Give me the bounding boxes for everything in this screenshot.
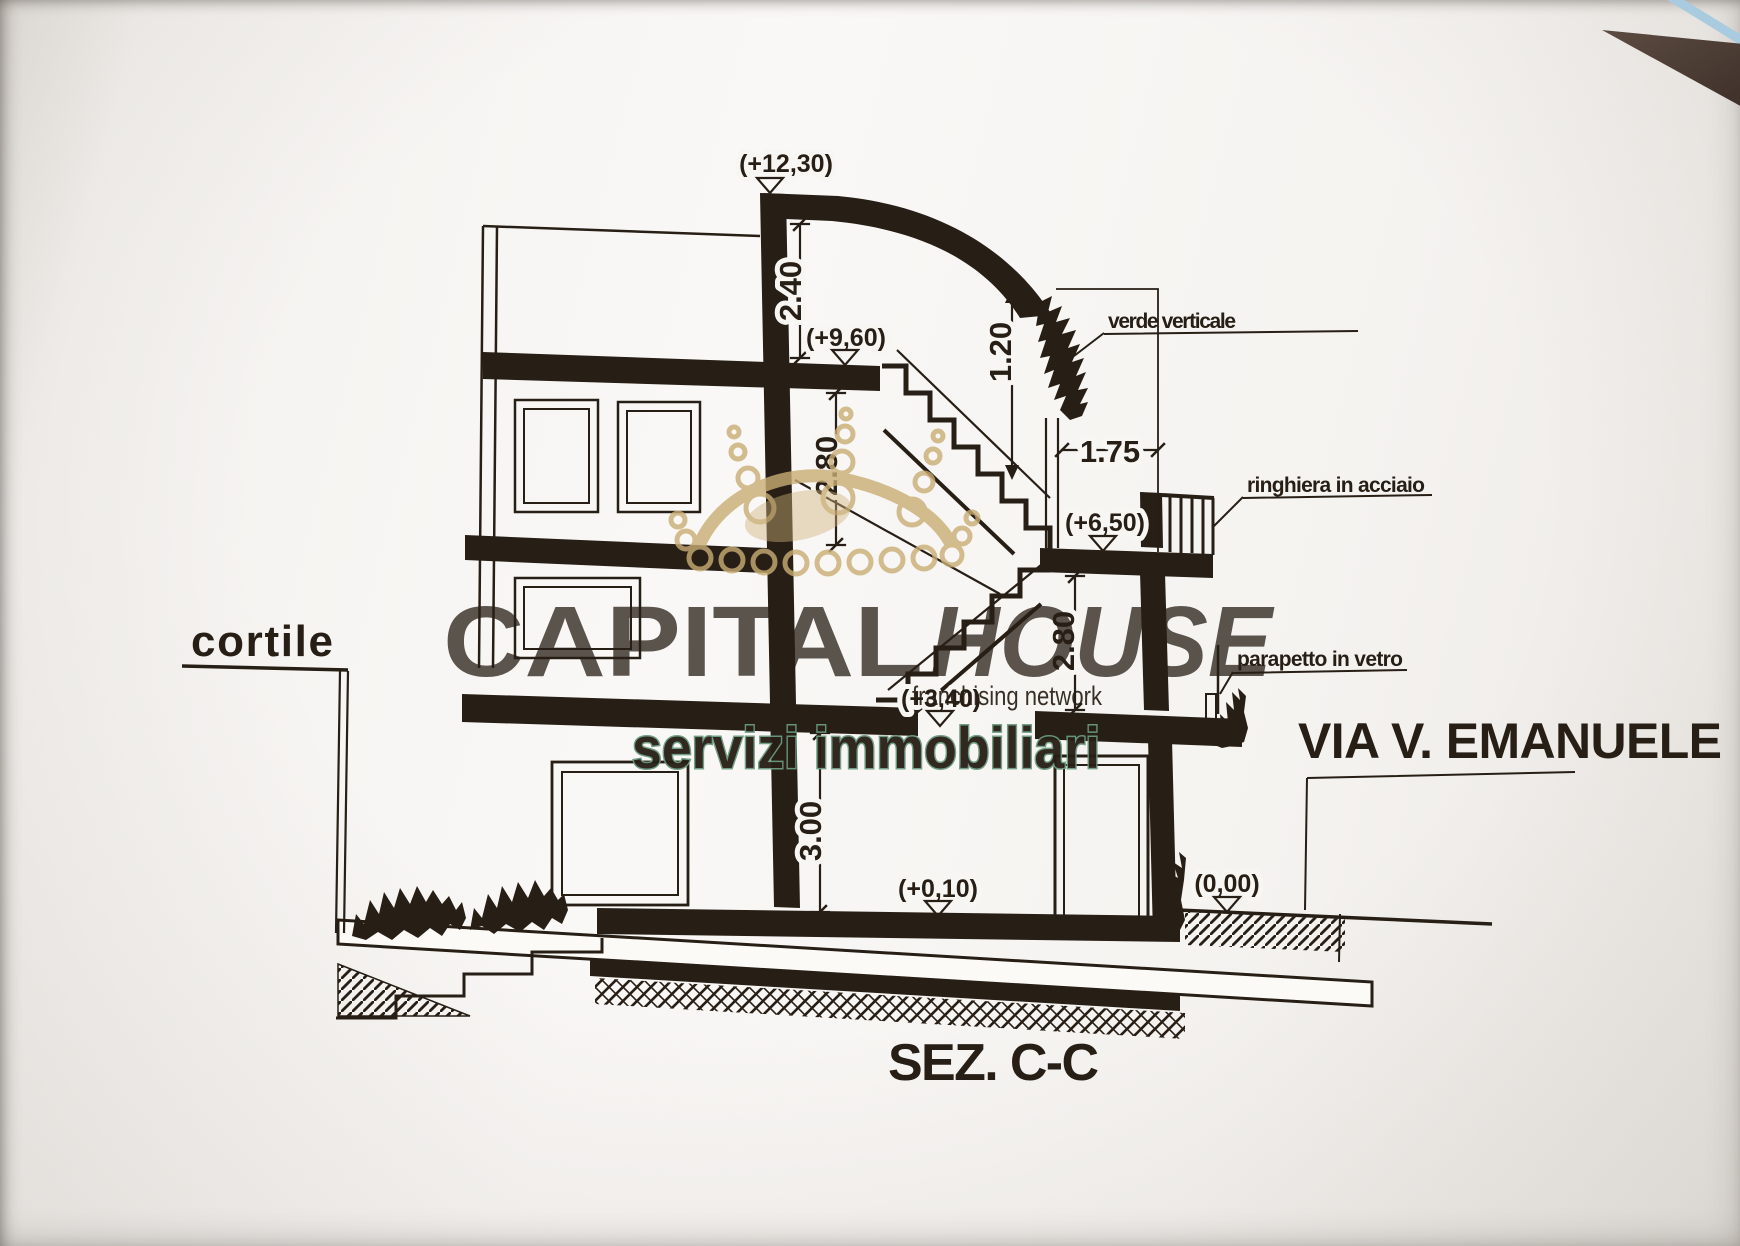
elevation-label: (0,00) [1194, 870, 1259, 898]
rear-roof-line [483, 226, 760, 236]
dimension-label: 1.75 [1080, 434, 1140, 469]
slab-960 [483, 352, 880, 391]
elevation-label: (+6,50) [1065, 509, 1145, 537]
marker-0_00: (0,00) [1194, 870, 1259, 912]
dimension-label: 1.20 [983, 322, 1018, 382]
callout-ringhiera: ringhiera in acciaio [1212, 474, 1432, 528]
marker-6_50: (+6,50) [1065, 509, 1145, 551]
callout-label: verde verticale [1108, 310, 1236, 333]
terrain-hatch [338, 964, 470, 1016]
ground-slab [597, 908, 1180, 942]
ground-door-right [1055, 756, 1148, 928]
watermark-subtitle: servizi immobiliari [632, 716, 1100, 781]
dimension-label: 2.40 [773, 261, 808, 321]
upper-window-right [618, 402, 700, 512]
slab-650-right [1040, 548, 1213, 578]
upper-window-left [515, 400, 598, 512]
elevation-triangle-icon [1214, 897, 1240, 912]
street-hatch [1185, 912, 1345, 952]
marker-9_60: (+9,60) [806, 324, 886, 365]
balcony-railing [1162, 495, 1214, 555]
elevation-label: (+9,60) [806, 324, 886, 352]
courtyard-label: cortile [191, 617, 333, 666]
elevation-triangle-icon [832, 350, 858, 365]
street [1178, 772, 1575, 962]
scanned-plan-photo: 2.40 1.20 2.80 1.75 2.80 [0, 0, 1740, 1246]
corner-blue-stripe [1666, 0, 1740, 42]
dimension-label: 3.00 [793, 801, 828, 861]
callout-label: ringhiera in acciaio [1247, 474, 1425, 497]
photo-corner [1602, 0, 1740, 108]
courtyard-underline [182, 666, 348, 670]
dim-1_75: 1.75 [1056, 434, 1164, 469]
elevation-label: (+12,30) [739, 150, 833, 178]
elevation-triangle-icon [757, 178, 783, 193]
ground-window [552, 762, 688, 905]
section-title: SEZ. C-C [888, 1034, 1102, 1092]
watermark-brand-capital: CAPITAL [443, 586, 923, 698]
street-boundary-lines [1305, 772, 1575, 962]
courtyard-wall [336, 671, 348, 933]
callout-verde-verticale: verde verticale [1074, 310, 1358, 356]
street-label: VIA V. EMANUELE [1298, 713, 1722, 769]
elevation-label: (+0,10) [898, 875, 978, 903]
marker-0_10: (+0,10) [898, 875, 978, 916]
corner-dark-wedge [1602, 30, 1740, 108]
marker-12_30: (+12,30) [739, 150, 833, 193]
elevation-triangle-icon [1090, 536, 1116, 551]
watermark-tagline: franchising network [912, 681, 1102, 711]
green-wall-plants [1036, 296, 1088, 420]
